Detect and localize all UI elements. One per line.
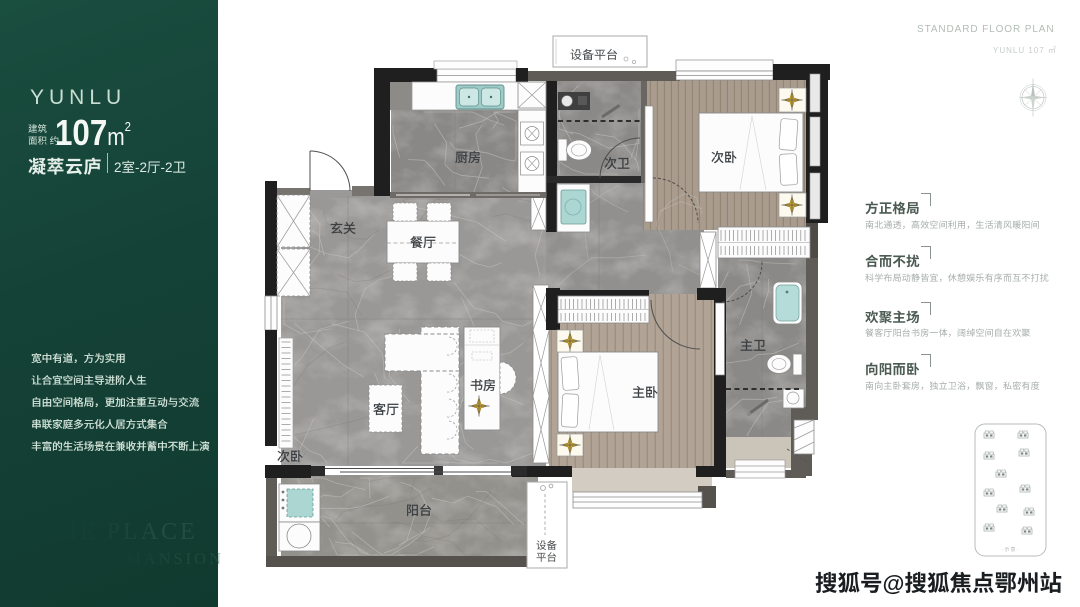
svg-text:书房: 书房 (470, 375, 496, 394)
svg-text:· 示 意 ·: · 示 意 · (1002, 546, 1019, 553)
svg-text:次卧: 次卧 (711, 147, 737, 166)
svg-text:客厅: 客厅 (373, 399, 399, 418)
svg-text:主卫: 主卫 (740, 335, 766, 354)
svg-text:阳台: 阳台 (406, 500, 432, 519)
svg-text:次卧: 次卧 (277, 446, 303, 465)
svg-text:次卫: 次卫 (604, 153, 630, 172)
svg-text:餐厅: 餐厅 (410, 232, 436, 251)
svg-text:玄关: 玄关 (330, 218, 356, 237)
svg-text:厨房: 厨房 (455, 147, 481, 166)
svg-text:设备平台: 设备平台 (570, 46, 618, 63)
svg-text:平台: 平台 (536, 550, 557, 565)
svg-text:主卧: 主卧 (632, 382, 658, 401)
